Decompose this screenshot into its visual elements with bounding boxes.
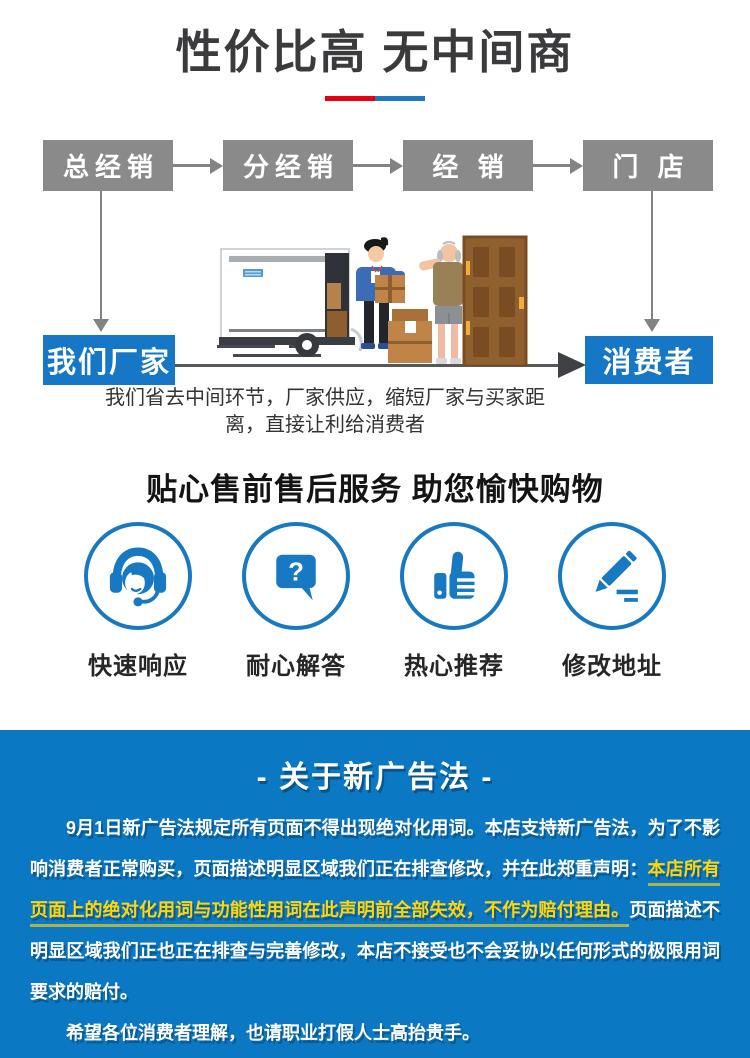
- notice-heading: - 关于新广告法 -: [0, 730, 750, 796]
- flow-box: 经 销: [403, 140, 533, 191]
- delivery-illustration: [185, 233, 545, 366]
- service-label: 修改地址: [562, 646, 662, 681]
- arrow-down-icon: [93, 319, 109, 332]
- promo-page: 性价比高 无中间商 总经销分经销经 销门 店 我们厂家 消费者: [0, 0, 750, 1058]
- flow-row: 总经销分经销经 销门 店: [43, 140, 713, 191]
- service-item: 修改地址: [556, 522, 668, 681]
- notice-text: 9月1日新广告法规定所有页面不得出现绝对化用词。本店支持新广告法，为了不影响消费…: [30, 818, 720, 879]
- thumbs-up-icon: [400, 522, 508, 630]
- advertising-law-notice: - 关于新广告法 - 9月1日新广告法规定所有页面不得出现绝对化用词。本店支持新…: [0, 730, 750, 1058]
- services-title: 贴心售前售后服务 助您愉快购物: [0, 464, 750, 509]
- notice-paragraph: 9月1日新广告法规定所有页面不得出现绝对化用词。本店支持新广告法，为了不影响消费…: [30, 808, 720, 1013]
- flow-caption: 我们省去中间环节，厂家供应，缩短厂家与买家距离，直接让利给消费者: [100, 385, 550, 439]
- service-label: 热心推荐: [404, 646, 504, 681]
- flow-box: 分经销: [223, 140, 353, 191]
- service-item: ? 耐心解答: [240, 522, 352, 681]
- arrow-down-icon: [644, 319, 660, 332]
- flow-box: 总经销: [43, 140, 173, 191]
- consumer-box: 消费者: [585, 336, 713, 384]
- flow-box: 门 店: [583, 140, 713, 191]
- services-row: 快速响应 ? 耐心解答 热心推荐: [0, 522, 750, 681]
- notice-paragraph: 希望各位消费者理解，也请职业打假人士高抬贵手。: [30, 1013, 720, 1054]
- question-bubble-icon: ?: [242, 522, 350, 630]
- arrow-right-icon: [173, 140, 223, 191]
- factory-box: 我们厂家: [43, 335, 175, 385]
- arrow-right-icon: [353, 140, 403, 191]
- headset-icon: [84, 522, 192, 630]
- underline-blue-segment: [375, 96, 425, 101]
- pencil-icon: [558, 522, 666, 630]
- connector-line-right: [651, 191, 653, 321]
- underline-red-segment: [325, 96, 375, 101]
- connector-line-left: [100, 191, 102, 321]
- service-label: 耐心解答: [246, 646, 346, 681]
- service-item: 快速响应: [82, 522, 194, 681]
- distribution-diagram: 总经销分经销经 销门 店 我们厂家 消费者: [0, 135, 750, 447]
- services-section: 贴心售前售后服务 助您愉快购物 快速响应 ? 耐心解答: [0, 458, 750, 688]
- arrow-right-icon: [558, 352, 586, 378]
- service-label: 快速响应: [88, 646, 188, 681]
- service-item: 热心推荐: [398, 522, 510, 681]
- svg-text:?: ?: [288, 559, 304, 587]
- arrow-right-icon: [533, 140, 583, 191]
- notice-text: 希望各位消费者理解，也请职业打假人士高抬贵手。: [66, 1023, 480, 1043]
- notice-body: 9月1日新广告法规定所有页面不得出现绝对化用词。本店支持新广告法，为了不影响消费…: [30, 808, 720, 1054]
- page-title: 性价比高 无中间商: [0, 16, 750, 82]
- title-underline-decoration: [325, 96, 425, 101]
